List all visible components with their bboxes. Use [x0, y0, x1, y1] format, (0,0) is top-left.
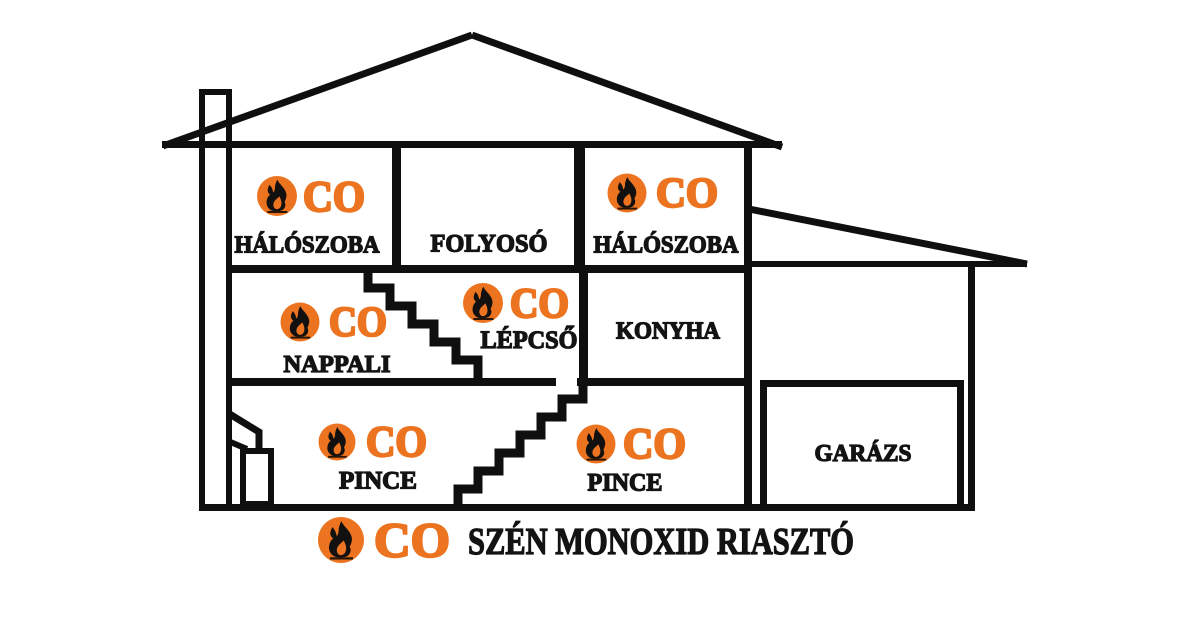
- svg-text:CO: CO: [510, 282, 569, 328]
- svg-text:HÁLÓSZOBA: HÁLÓSZOBA: [594, 232, 740, 259]
- svg-text:CO: CO: [303, 174, 365, 221]
- svg-text:CO: CO: [366, 419, 427, 466]
- svg-text:PINCE: PINCE: [588, 470, 663, 497]
- svg-text:NAPPALI: NAPPALI: [284, 352, 391, 378]
- svg-text:CO: CO: [329, 300, 387, 346]
- svg-text:PINCE: PINCE: [339, 468, 417, 495]
- svg-text:SZÉN MONOXID RIASZTÓ: SZÉN MONOXID RIASZTÓ: [468, 521, 854, 563]
- svg-text:CO: CO: [623, 421, 686, 468]
- svg-text:GARÁZS: GARÁZS: [815, 441, 912, 467]
- svg-text:CO: CO: [656, 171, 718, 217]
- svg-text:HÁLÓSZOBA: HÁLÓSZOBA: [235, 232, 381, 259]
- svg-text:CO: CO: [374, 513, 450, 568]
- svg-text:LÉPCSŐ: LÉPCSŐ: [481, 325, 578, 354]
- svg-text:KONYHA: KONYHA: [616, 319, 721, 345]
- svg-text:FOLYOSÓ: FOLYOSÓ: [431, 230, 548, 258]
